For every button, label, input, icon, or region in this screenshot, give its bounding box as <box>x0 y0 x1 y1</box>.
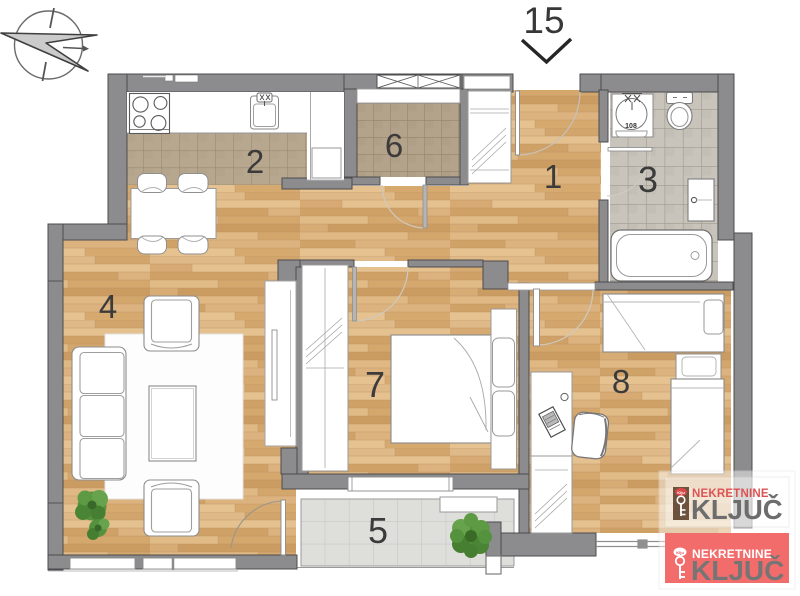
svg-text:1: 1 <box>544 158 562 195</box>
svg-text:3: 3 <box>638 159 658 200</box>
svg-text:2: 2 <box>246 143 264 180</box>
svg-text:Klju: Klju <box>677 490 685 495</box>
svg-text:KLJUČ: KLJUČ <box>691 554 784 586</box>
svg-text:KLJUČ: KLJUČ <box>691 493 783 525</box>
svg-text:4: 4 <box>99 288 117 325</box>
svg-text:6: 6 <box>385 127 403 164</box>
svg-text:Klju: Klju <box>676 550 684 555</box>
svg-text:5: 5 <box>368 510 388 551</box>
svg-text:8: 8 <box>612 363 630 400</box>
svg-text:15: 15 <box>523 0 564 41</box>
svg-text:7: 7 <box>365 364 385 405</box>
svg-text:108: 108 <box>625 123 637 130</box>
